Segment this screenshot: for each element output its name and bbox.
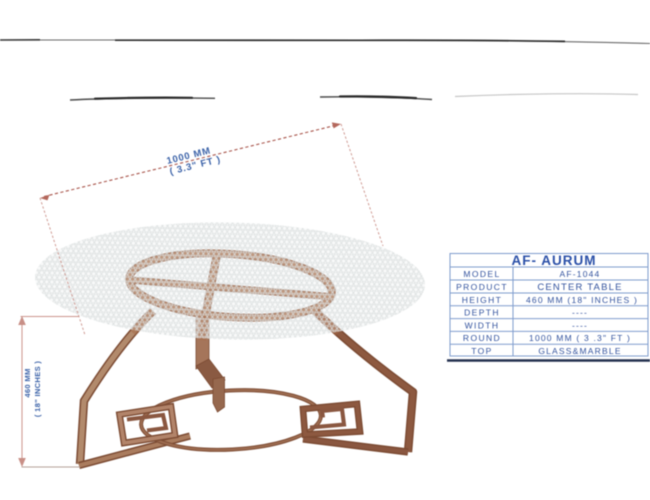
svg-text:WIDTH: WIDTH: [465, 320, 500, 330]
svg-text:CENTER TABLE: CENTER TABLE: [537, 282, 622, 293]
svg-text:460 MM: 460 MM: [23, 368, 32, 397]
svg-text:ROUND: ROUND: [463, 333, 501, 343]
svg-text:AF-1044: AF-1044: [559, 269, 600, 279]
svg-text:----: ----: [572, 308, 588, 318]
svg-text:PRODUCT: PRODUCT: [456, 282, 508, 292]
svg-text:( 18" INCHES ): ( 18" INCHES ): [33, 361, 42, 417]
svg-text:GLASS&MARBLE: GLASS&MARBLE: [538, 346, 621, 356]
svg-text:1000 MM ( 3 .3" FT ): 1000 MM ( 3 .3" FT ): [529, 333, 631, 343]
svg-text:460 MM (18" INCHES ): 460 MM (18" INCHES ): [526, 295, 638, 305]
svg-text:AF- AURUM: AF- AURUM: [512, 253, 597, 268]
svg-text:HEIGHT: HEIGHT: [462, 295, 503, 305]
svg-text:DEPTH: DEPTH: [464, 308, 500, 318]
svg-text:MODEL: MODEL: [463, 269, 500, 279]
svg-text:----: ----: [572, 320, 588, 330]
svg-text:TOP: TOP: [471, 346, 493, 356]
